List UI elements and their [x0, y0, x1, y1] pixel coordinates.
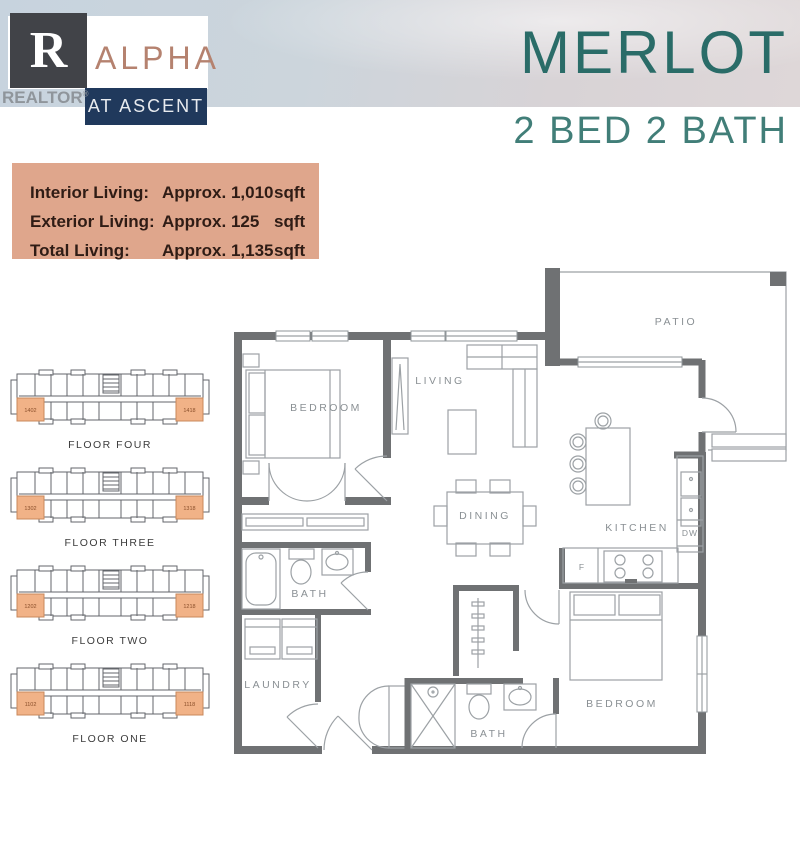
unit-number: 1418 — [183, 408, 195, 414]
keyplan-floor-three: 1302 1318 FLOOR THREE — [5, 460, 215, 549]
main-floorplan: BEDROOM LIVING DINING KITCHEN BATH LAUND… — [228, 262, 800, 770]
patio-door — [702, 398, 736, 432]
bathtub — [242, 549, 280, 609]
brand-name: ALPHA — [95, 40, 207, 77]
room-label-laundry: LAUNDRY — [244, 679, 312, 691]
bath1-walls — [234, 545, 371, 612]
summary-row: Interior Living: Approx. 1,010 sqft — [30, 178, 319, 207]
unit-number: 1202 — [24, 604, 36, 610]
room-label-patio: PATIO — [655, 316, 697, 328]
sink2 — [504, 684, 536, 710]
bedroom2-door — [525, 590, 559, 624]
unit-number: 1102 — [25, 702, 37, 708]
keyplan-floor-two: 1202 1218 FLOOR TWO — [5, 558, 215, 647]
unit-number: 1218 — [183, 604, 195, 610]
room-label-living: LIVING — [415, 375, 464, 387]
brand-sub-banner: AT ASCENT — [85, 88, 207, 125]
page-title: MERLOT — [520, 18, 788, 87]
summary-row: Exterior Living: Approx. 125 sqft — [30, 207, 319, 236]
keyplan-label: FLOOR THREE — [5, 537, 215, 549]
laundry-door — [287, 704, 318, 748]
room-label-kitchen: KITCHEN — [605, 522, 669, 534]
walkin-closet — [453, 585, 519, 676]
unit-number: 1402 — [24, 408, 36, 414]
appliance-label-dishwasher: DW — [682, 528, 698, 538]
keyplan-diagram: 1102 1118 — [5, 656, 215, 726]
room-label-dining: DINING — [459, 510, 511, 522]
page-subtitle: 2 BED 2 BATH — [513, 110, 788, 153]
keyplan-label: FLOOR FOUR — [5, 439, 215, 451]
coffee-table — [448, 410, 476, 454]
hall-closet — [242, 514, 368, 530]
unit-number: 1118 — [184, 702, 195, 708]
room-label-bath1: BATH — [291, 588, 328, 600]
room-label-bedroom1: BEDROOM — [290, 402, 362, 414]
tv-console — [392, 358, 408, 434]
toilet2 — [467, 684, 491, 719]
linen-closet — [359, 686, 407, 748]
keyplan-diagram: 1202 1218 — [5, 558, 215, 628]
entry-door — [324, 716, 372, 750]
room-label-bedroom2: BEDROOM — [586, 698, 658, 710]
unit-number: 1318 — [183, 506, 195, 512]
realtor-logo-icon: R — [10, 13, 87, 88]
keyplan-label: FLOOR TWO — [5, 635, 215, 647]
bedroom1-walls — [234, 332, 391, 501]
bath1-door — [341, 572, 368, 610]
bedroom1-closet-doors — [269, 463, 345, 501]
appliance-label-fridge: F — [579, 562, 585, 572]
keyplan-floor-four: 1402 1418 FLOOR FOUR — [5, 362, 215, 451]
bed2 — [570, 592, 662, 680]
registered-symbol: ® — [83, 89, 89, 98]
shower — [411, 684, 455, 748]
room-label-bath2: BATH — [470, 728, 507, 740]
floorplan-flyer: ALPHA AT ASCENT R REALTOR® MERLOT 2 BED … — [0, 0, 800, 848]
sink1 — [322, 549, 353, 575]
keyplan-diagram: 1302 1318 — [5, 460, 215, 530]
kitchen-island — [570, 413, 630, 505]
toilet1 — [289, 549, 314, 584]
bedroom1-door — [355, 456, 387, 501]
unit-number: 1302 — [24, 506, 36, 512]
realtor-letter: R — [30, 21, 68, 80]
brand-sub-label: AT ASCENT — [88, 96, 204, 117]
sofa — [467, 345, 537, 447]
keyplan-label: FLOOR ONE — [5, 733, 215, 745]
washer-dryer — [245, 619, 317, 659]
realtor-wordmark: REALTOR® — [2, 88, 102, 108]
keyplan-floor-one: 1102 1118 FLOOR ONE — [5, 656, 215, 745]
sqft-summary-box: Interior Living: Approx. 1,010 sqft Exte… — [12, 163, 319, 259]
summary-row: Total Living: Approx. 1,135 sqft — [30, 236, 319, 265]
bed1 — [243, 354, 340, 474]
keyplan-diagram: 1402 1418 — [5, 362, 215, 432]
bath2-door — [522, 714, 556, 748]
